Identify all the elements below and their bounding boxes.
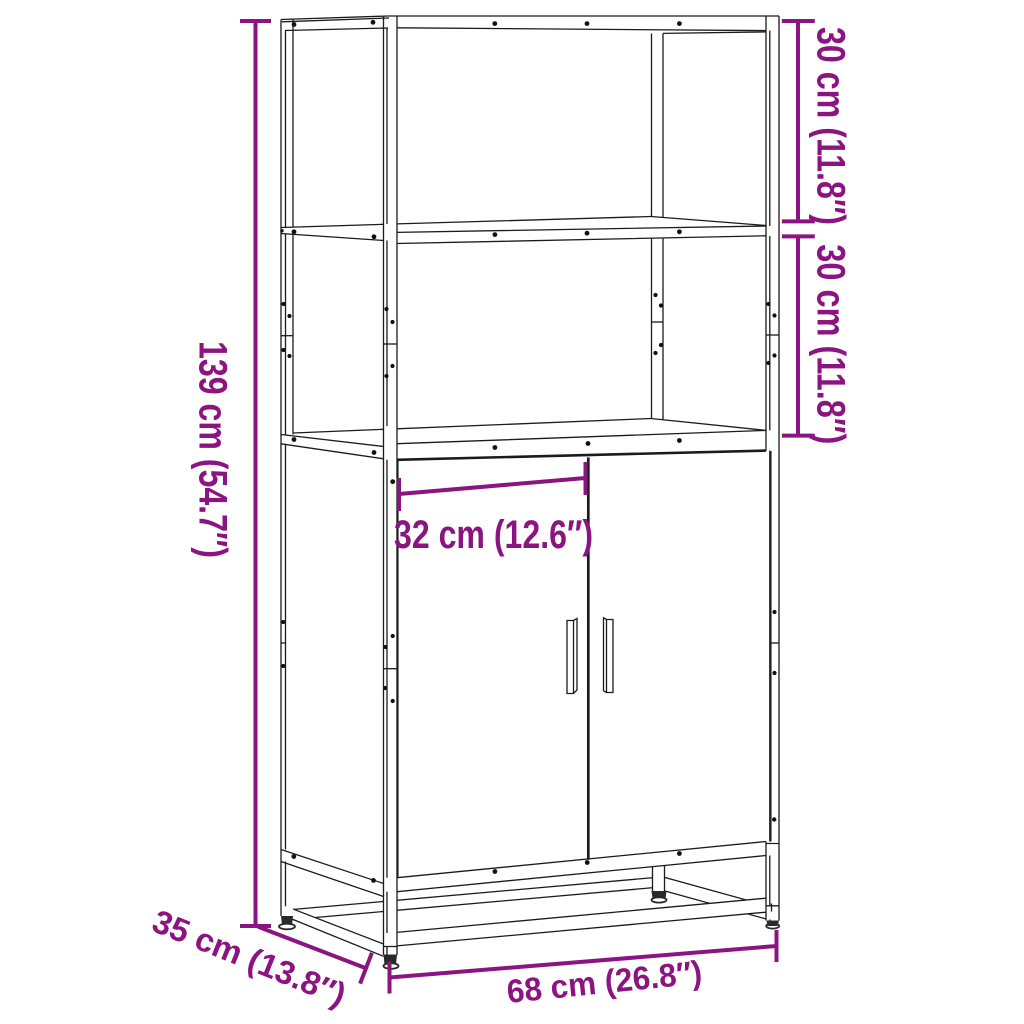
- svg-text:30 cm (11.8″): 30 cm (11.8″): [809, 244, 853, 444]
- svg-text:30 cm (11.8″): 30 cm (11.8″): [809, 27, 853, 225]
- svg-text:32 cm (12.6″): 32 cm (12.6″): [394, 513, 593, 557]
- svg-text:139 cm (54.7″): 139 cm (54.7″): [191, 341, 235, 558]
